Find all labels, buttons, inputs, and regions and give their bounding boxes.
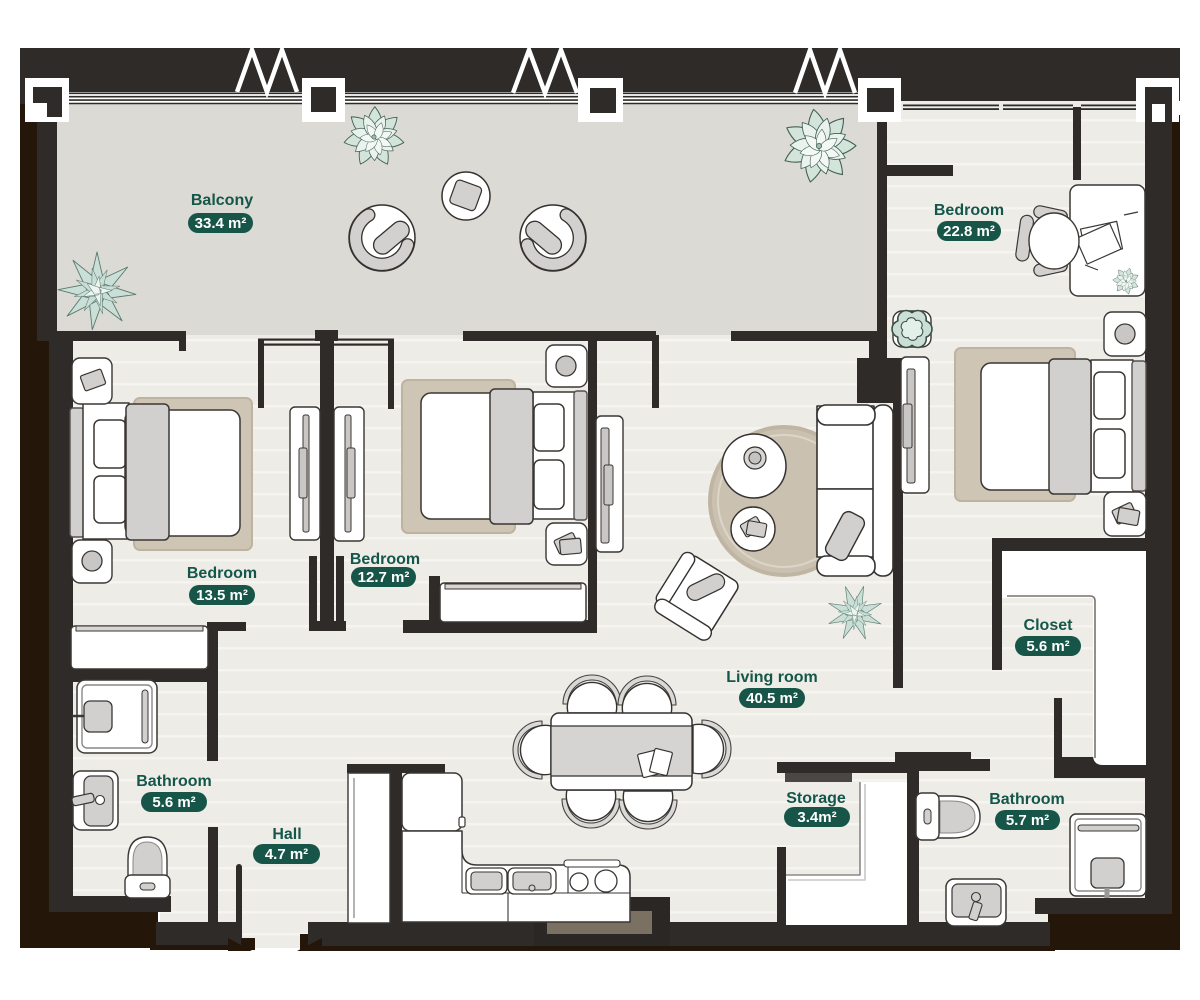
svg-text:3.4m²: 3.4m² <box>797 809 836 826</box>
svg-text:Bedroom: Bedroom <box>934 202 1004 219</box>
svg-text:Closet: Closet <box>1024 617 1074 634</box>
svg-text:4.7 m²: 4.7 m² <box>265 846 308 863</box>
svg-text:5.6 m²: 5.6 m² <box>152 794 195 811</box>
svg-text:Storage: Storage <box>786 790 846 807</box>
svg-text:33.4 m²: 33.4 m² <box>195 215 247 232</box>
svg-text:22.8 m²: 22.8 m² <box>943 223 995 240</box>
svg-text:Bedroom: Bedroom <box>350 551 420 568</box>
svg-text:5.6 m²: 5.6 m² <box>1026 638 1069 655</box>
svg-text:5.7 m²: 5.7 m² <box>1006 812 1049 829</box>
svg-text:40.5 m²: 40.5 m² <box>746 690 798 707</box>
svg-text:12.7 m²: 12.7 m² <box>358 569 410 586</box>
svg-text:Balcony: Balcony <box>191 192 253 209</box>
svg-text:13.5 m²: 13.5 m² <box>196 587 248 604</box>
svg-text:Hall: Hall <box>272 826 301 843</box>
svg-text:Bedroom: Bedroom <box>187 565 257 582</box>
svg-text:Bathroom: Bathroom <box>136 773 212 790</box>
svg-text:Bathroom: Bathroom <box>989 791 1065 808</box>
svg-text:Living room: Living room <box>726 669 818 686</box>
